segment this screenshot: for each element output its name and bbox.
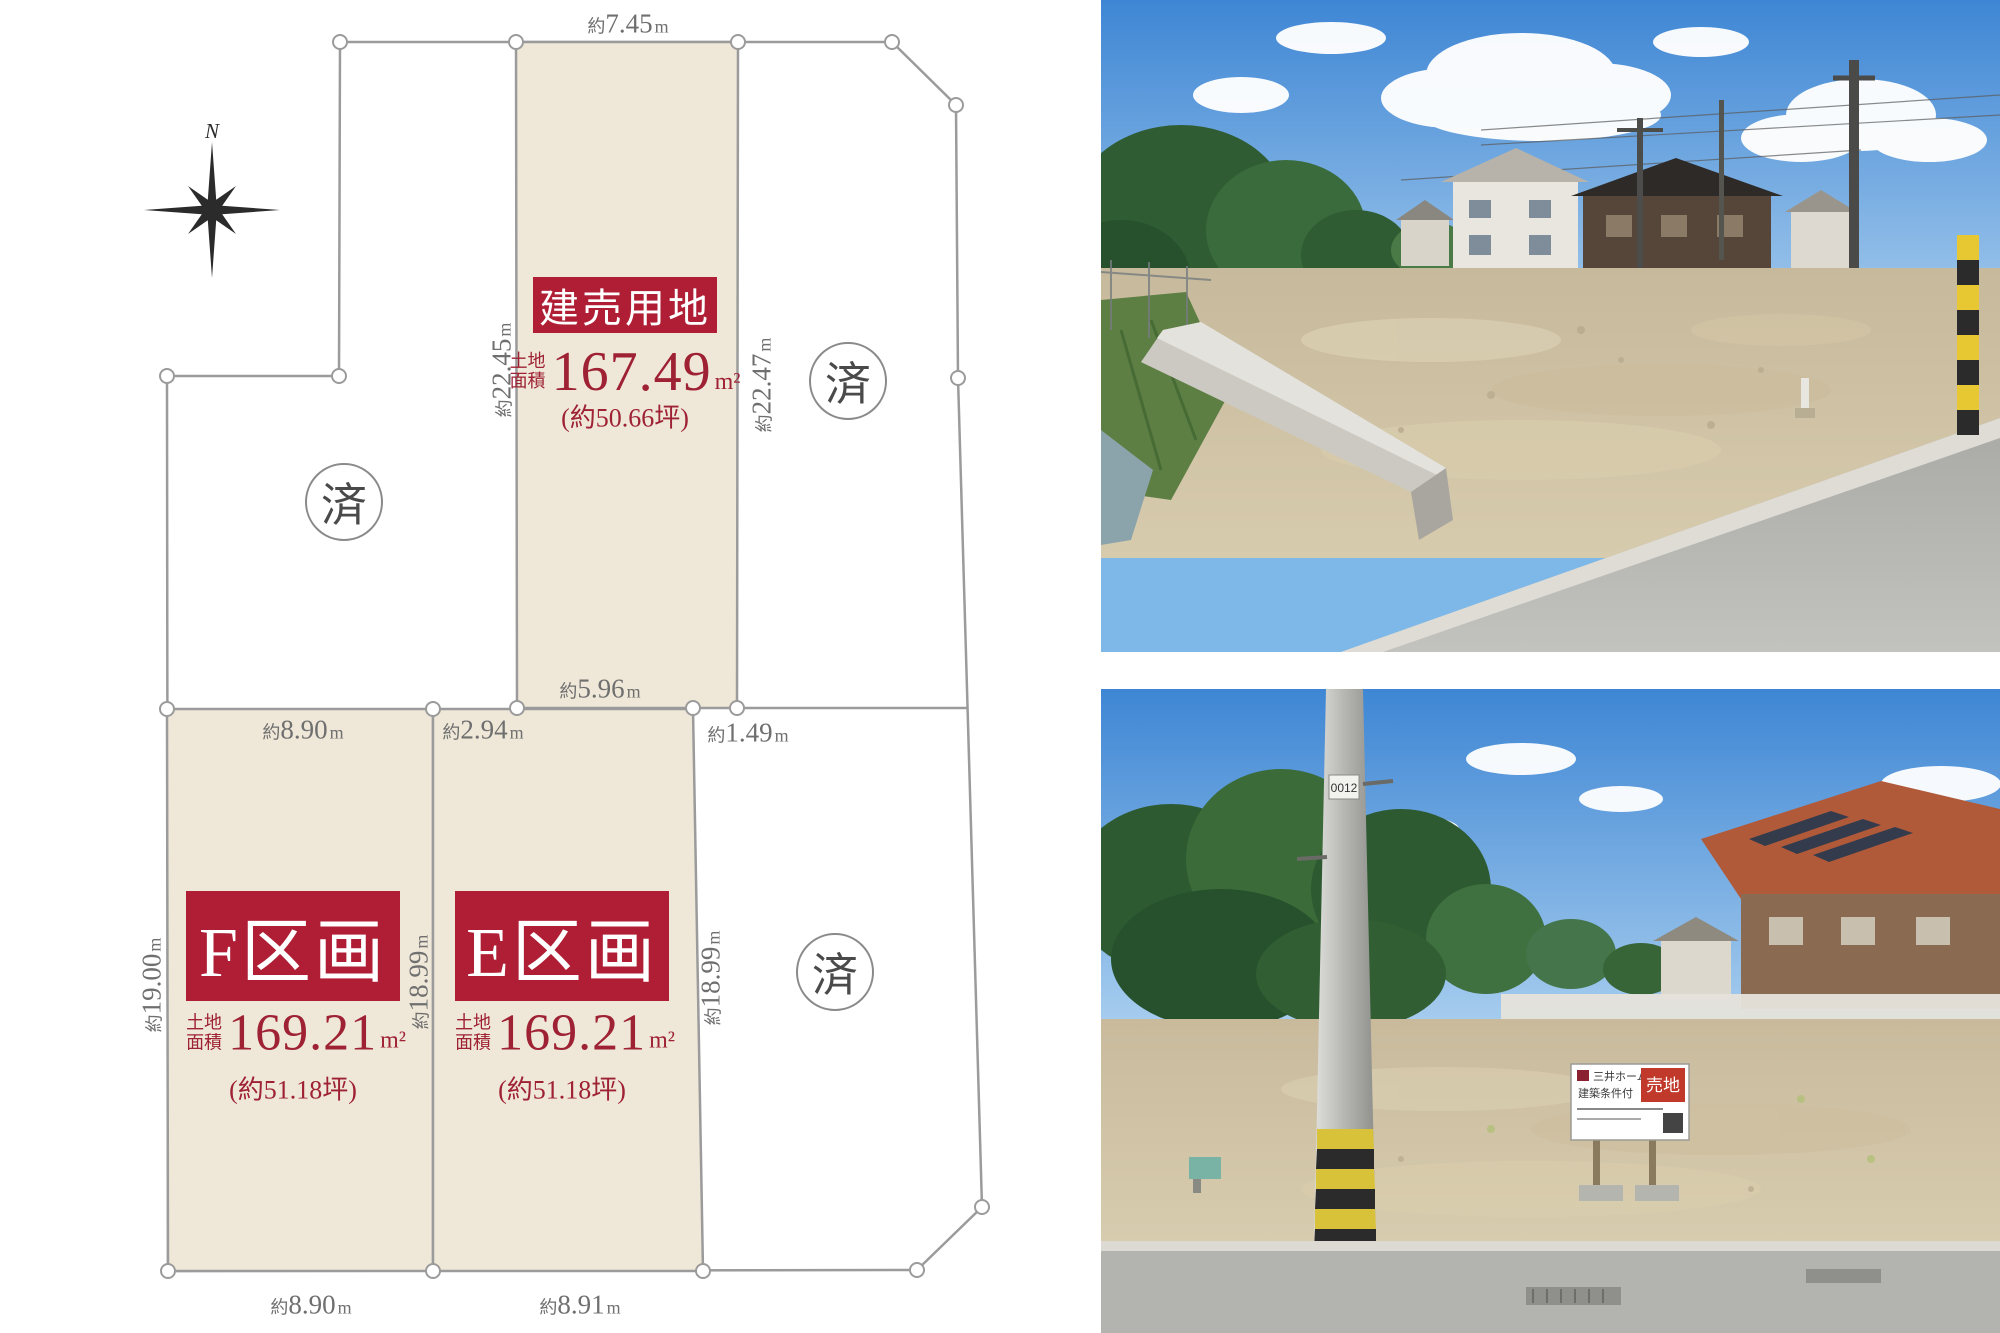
dim-prefix: 約 xyxy=(270,1294,288,1320)
plot-label-build: 建売用地 xyxy=(533,277,717,333)
dim-unit: m xyxy=(145,938,166,952)
area-unit: m² xyxy=(380,1028,406,1063)
sold-stamp-left: 済 xyxy=(305,463,383,541)
dim-8-91m: 約8.91m xyxy=(539,1290,620,1321)
dim-value: 8.91 xyxy=(557,1290,604,1321)
area-tsubo-f: (約51.18坪) xyxy=(229,1070,357,1107)
area-e: 土地面積 169.21 m² xyxy=(455,1004,675,1063)
area-caption-line2: 面積 xyxy=(186,1033,222,1053)
site-plan-drawing: N xyxy=(0,0,1060,1333)
dim-value: 2.94 xyxy=(460,715,507,746)
pole-stripes xyxy=(1314,1129,1376,1249)
dim-prefix: 約 xyxy=(751,414,777,432)
dim-prefix: 約 xyxy=(442,719,460,745)
area-value: 169.21 xyxy=(228,1004,377,1063)
dim-2-94m: 約2.94m xyxy=(442,715,523,746)
dim-value: 7.45 xyxy=(605,9,652,40)
dim-unit: m xyxy=(627,682,641,703)
area-caption: 土地面積 xyxy=(510,352,546,392)
area-caption-line1: 土地 xyxy=(186,1013,222,1033)
dim-prefix: 約 xyxy=(539,1294,557,1320)
area-build: 土地面積 167.49 m² xyxy=(510,340,741,404)
dim-value: 18.99 xyxy=(696,947,727,1008)
area-caption-line2: 面積 xyxy=(510,372,546,392)
area-caption-line1: 土地 xyxy=(510,352,546,372)
dim-value: 8.90 xyxy=(288,1290,335,1321)
dim-value: 18.99 xyxy=(404,951,435,1012)
photo-lot-south-art: 三井ホーム 建築条件付 売地 0012 xyxy=(1101,689,2000,1333)
compass-n-label: N xyxy=(204,119,220,143)
dim-value: 1.49 xyxy=(725,718,772,749)
area-caption-line1: 土地 xyxy=(455,1013,491,1033)
dim-unit: m xyxy=(495,323,516,337)
area-tsubo-e: (約51.18坪) xyxy=(498,1070,626,1107)
area-caption-line2: 面積 xyxy=(455,1033,491,1053)
sign-main: 売地 xyxy=(1646,1076,1680,1095)
dim-value: 19.00 xyxy=(137,954,168,1015)
plot-label-f: F区画 xyxy=(186,891,400,1001)
dim-8-90m-top: 約8.90m xyxy=(262,715,343,746)
curb xyxy=(1101,1241,2000,1251)
dim-unit: m xyxy=(607,1298,621,1319)
dim-unit: m xyxy=(655,17,669,38)
dim-18-99m-right: 約18.99m xyxy=(696,931,727,1026)
dim-prefix: 約 xyxy=(408,1011,434,1029)
area-f: 土地面積 169.21 m² xyxy=(186,1004,406,1063)
area-unit: m² xyxy=(715,369,741,404)
area-value: 169.21 xyxy=(497,1004,646,1063)
sign-condition: 建築条件付 xyxy=(1578,1086,1633,1100)
dim-prefix: 約 xyxy=(700,1007,726,1025)
striped-pole-guard xyxy=(1957,235,1979,435)
area-value: 167.49 xyxy=(552,340,712,404)
dim-19-00m: 約19.00m xyxy=(137,938,168,1033)
sold-stamp-bottom-right: 済 xyxy=(796,933,874,1011)
photo-lot-north-art xyxy=(1101,0,2000,652)
dim-value: 5.96 xyxy=(577,674,624,705)
area-caption: 土地面積 xyxy=(186,1013,222,1053)
sign-brand: 三井ホーム xyxy=(1593,1069,1648,1083)
dim-right-22-47m: 約22.47m xyxy=(747,338,778,433)
pole-plate-number: 0012 xyxy=(1331,781,1358,795)
area-caption: 土地面積 xyxy=(455,1013,491,1053)
dim-prefix: 約 xyxy=(707,722,725,748)
area-tsubo-build: (約50.66坪) xyxy=(561,398,689,435)
sold-stamp-top-right: 済 xyxy=(809,342,887,420)
dim-prefix: 約 xyxy=(587,13,605,39)
back-wall xyxy=(1501,994,2000,1022)
page: { "colors": { "accent": "#b01e35", "area… xyxy=(0,0,2000,1333)
dim-5-96m: 約5.96m xyxy=(559,674,640,705)
dim-unit: m xyxy=(510,723,524,744)
dim-unit: m xyxy=(330,723,344,744)
dim-unit: m xyxy=(338,1298,352,1319)
dim-prefix: 約 xyxy=(262,719,280,745)
dim-8-90m-bottom: 約8.90m xyxy=(270,1290,351,1321)
dim-unit: m xyxy=(775,726,789,747)
site-plan: N 約7.45m 約22.45m 約22.47m 約5.96m 約8.90m 約… xyxy=(0,0,1060,1333)
dim-value: 22.47 xyxy=(747,354,778,415)
photo-lot-south: 三井ホーム 建築条件付 売地 0012 xyxy=(1101,689,2000,1333)
photo-lot-north xyxy=(1101,0,2000,652)
dim-unit: m xyxy=(412,935,433,949)
plot-label-e: E区画 xyxy=(455,891,669,1001)
dim-prefix: 約 xyxy=(141,1014,167,1032)
dim-unit: m xyxy=(755,338,776,352)
area-unit: m² xyxy=(649,1028,675,1063)
dim-top-7-45m: 約7.45m xyxy=(587,9,668,40)
dim-unit: m xyxy=(704,931,725,945)
dim-18-99m-mid: 約18.99m xyxy=(404,935,435,1030)
dim-value: 8.90 xyxy=(280,715,327,746)
dim-1-49m: 約1.49m xyxy=(707,718,788,749)
compass-icon: N xyxy=(144,119,280,278)
dim-prefix: 約 xyxy=(559,678,577,704)
